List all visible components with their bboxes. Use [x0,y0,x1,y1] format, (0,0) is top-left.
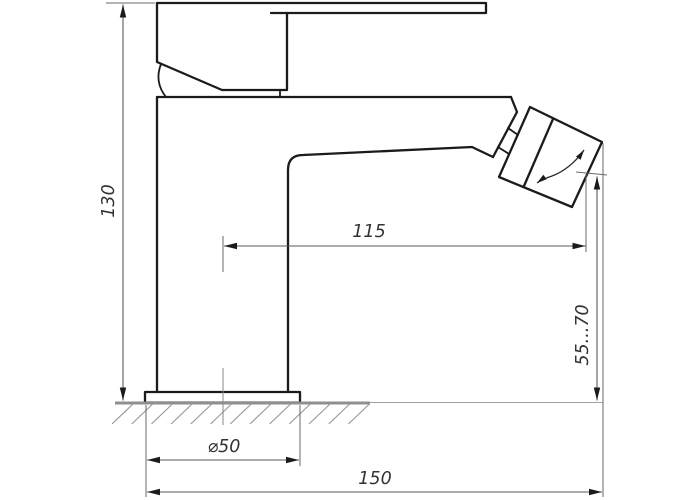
aerator-divider [524,119,553,186]
dim-label-115: 115 [352,222,385,242]
dim-label-150: 150 [358,469,391,489]
dim-label-50: ⌀50 [208,437,241,457]
handle-lever [157,3,486,13]
dim-label-130: 130 [99,184,119,217]
body-right-and-spout-underside [288,147,493,392]
technical-drawing-page: 130 115 55...70 ⌀50 [0,0,700,500]
dimensions: 130 115 55...70 ⌀50 [99,3,607,497]
faucet-outline [145,3,602,403]
aerator-neck-ridge-bottom [498,147,509,154]
faucet-technical-drawing: 130 115 55...70 ⌀50 [0,0,700,500]
mounting-surface [112,368,603,425]
dim-height-130: 130 [99,3,155,401]
surface-hatching [112,404,369,424]
spout-tip-face [493,97,517,157]
dim-aerator-height-55-70: 55...70 [573,172,607,401]
handle-pivot-arc [158,64,166,97]
leader-aerator-outlet [576,172,607,175]
aerator-neck-ridge-top [508,128,518,135]
dim-label-55-70: 55...70 [573,304,593,365]
dim-reach-115: 115 [223,174,586,272]
aerator-swivel-arrow [537,150,584,183]
handle-cap [157,3,287,90]
